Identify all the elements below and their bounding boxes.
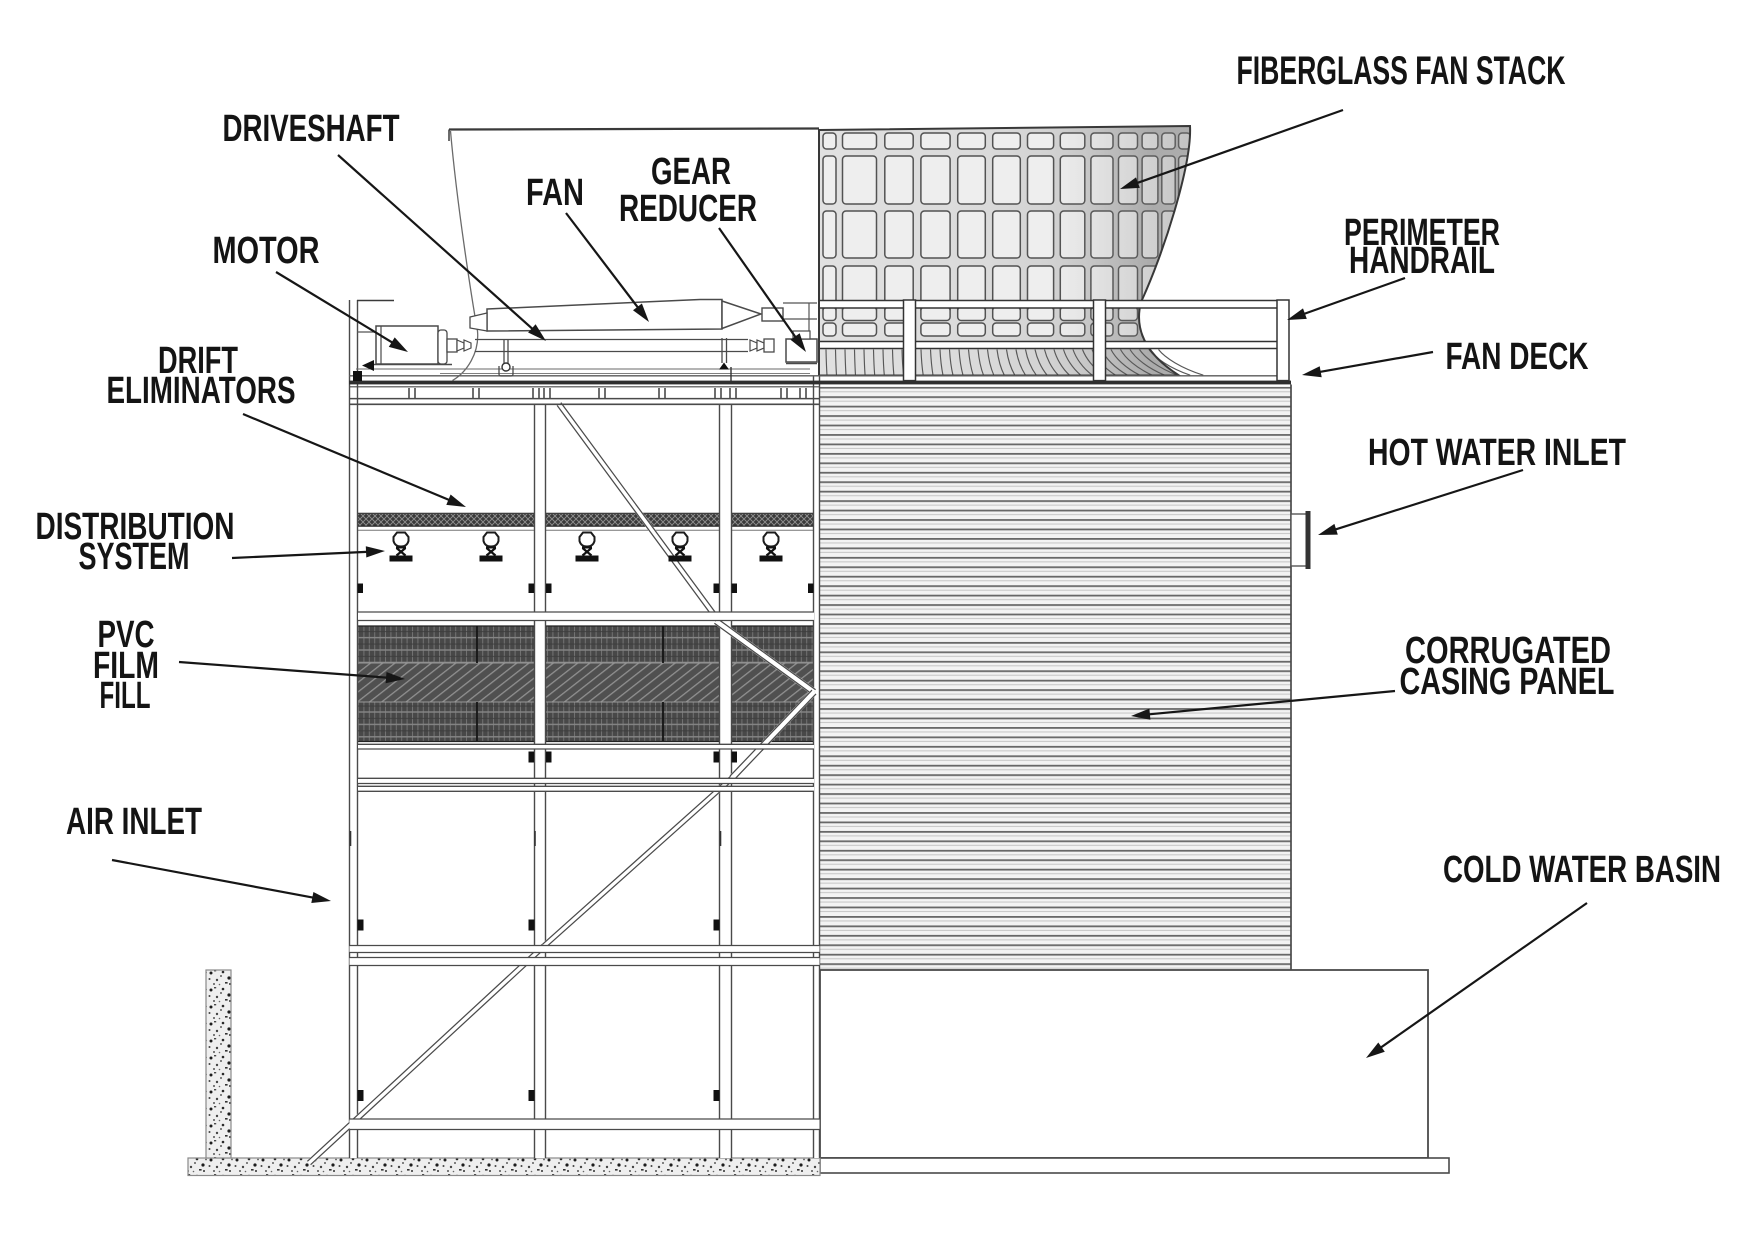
svg-text:FILL: FILL — [100, 675, 151, 717]
svg-text:COLD WATER BASIN: COLD WATER BASIN — [1443, 849, 1721, 891]
svg-text:AIR INLET: AIR INLET — [66, 801, 202, 843]
svg-text:DRIVESHAFT: DRIVESHAFT — [223, 108, 400, 150]
svg-text:MOTOR: MOTOR — [213, 230, 320, 272]
svg-text:FAN: FAN — [526, 172, 584, 214]
svg-text:CASING PANEL: CASING PANEL — [1400, 661, 1615, 703]
svg-text:FAN DECK: FAN DECK — [1446, 336, 1589, 378]
svg-text:GEAR: GEAR — [651, 151, 731, 193]
svg-text:HANDRAIL: HANDRAIL — [1349, 240, 1495, 282]
svg-text:REDUCER: REDUCER — [619, 188, 757, 230]
svg-text:HOT WATER INLET: HOT WATER INLET — [1368, 432, 1626, 474]
svg-text:FIBERGLASS FAN STACK: FIBERGLASS FAN STACK — [1237, 49, 1566, 93]
svg-text:SYSTEM: SYSTEM — [79, 536, 190, 578]
svg-text:ELIMINATORS: ELIMINATORS — [107, 370, 296, 412]
